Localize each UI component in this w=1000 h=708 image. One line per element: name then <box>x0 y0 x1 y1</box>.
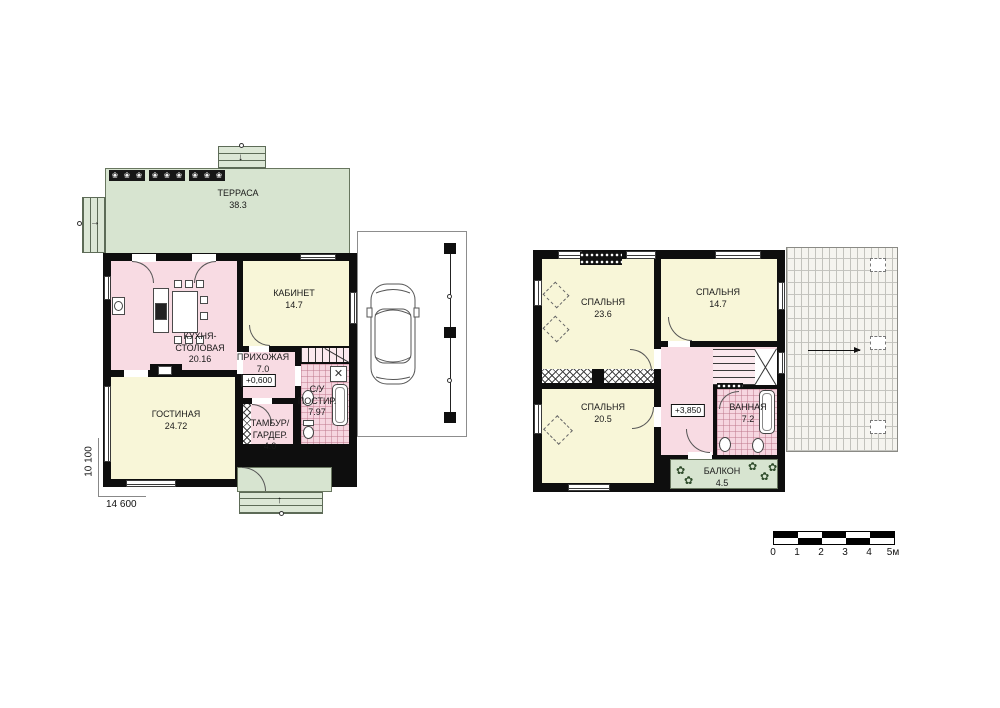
room-terrace <box>105 168 350 256</box>
room-area: 24.72 <box>152 421 201 433</box>
scale-tick-label: 2 <box>818 547 824 558</box>
washbasin <box>719 437 731 452</box>
room-area: 7.97 <box>298 407 336 419</box>
toilet <box>303 426 314 439</box>
room-name: СПАЛЬНЯ <box>581 402 625 414</box>
bathroom-label: ВАННАЯ 7.2 <box>729 402 766 425</box>
chair <box>185 280 193 288</box>
steps-start-circle <box>239 143 244 148</box>
window <box>626 251 656 259</box>
room-area: 14.7 <box>273 300 315 312</box>
fence-post <box>444 412 456 423</box>
window <box>778 282 785 310</box>
window <box>104 386 111 462</box>
room-name: ГАРДЕР. <box>251 430 290 442</box>
sink-bowl <box>114 301 123 311</box>
wardrobe-divider <box>592 369 604 383</box>
scale-cell <box>798 538 822 544</box>
room-name: ВАННАЯ <box>729 402 766 414</box>
room-name: СПАЛЬНЯ <box>696 287 740 299</box>
steps-start-circle <box>77 221 82 226</box>
window <box>104 276 111 300</box>
room-name: ГОСТИНАЯ <box>152 409 201 421</box>
plant-icon: ✿ <box>748 462 757 473</box>
plant-icon: ✿ <box>768 463 777 474</box>
kitchen-living-opening <box>124 370 148 377</box>
room-name: СТОЛОВАЯ <box>175 343 224 355</box>
chair <box>196 280 204 288</box>
bedroom-door-opening <box>654 349 661 369</box>
window <box>715 251 761 259</box>
scale-cell <box>870 538 894 544</box>
scale-tick-label: 4 <box>866 547 872 558</box>
chair <box>200 312 208 320</box>
chimney <box>580 252 622 265</box>
room-name: БАЛКОН <box>704 466 740 478</box>
living-label: ГОСТИНАЯ 24.72 <box>152 409 201 432</box>
scale-bar-row <box>774 538 894 544</box>
room-area: 20.16 <box>175 354 224 366</box>
floor-plan-canvas: ❀ ❀ ❀ ❀ ❀ ❀ ❀ ❀ ❀ ↓ → <box>0 0 1000 708</box>
chair <box>174 280 182 288</box>
window <box>126 480 176 487</box>
office-label: КАБИНЕТ 14.7 <box>273 288 315 311</box>
steps-arrow-up: ↑ <box>277 496 282 506</box>
room-name: ПРИХОЖАЯ <box>237 352 289 364</box>
flower-box-icon: ❀ <box>149 170 161 181</box>
stairs-first-floor <box>301 348 349 362</box>
room-area: 14.7 <box>696 299 740 311</box>
steps-arrow-right: → <box>90 218 100 228</box>
flower-box-icon: ❀ <box>201 170 213 181</box>
stove <box>155 303 167 320</box>
scale-tick-label: 3 <box>842 547 848 558</box>
wc-door-opening <box>295 366 301 386</box>
roof-column <box>870 420 886 434</box>
scale-bar <box>773 531 895 545</box>
balcony-label: БАЛКОН 4.5 <box>704 466 740 489</box>
washer-icon: ✕ <box>330 366 347 382</box>
roof-column <box>870 258 886 272</box>
room-name: СПАЛЬНЯ <box>581 297 625 309</box>
scale-cell <box>822 538 846 544</box>
chair <box>200 296 208 304</box>
bedroom-top-label: СПАЛЬНЯ 14.7 <box>696 287 740 310</box>
room-name: ТАМБУР/ <box>251 418 290 430</box>
level-mark: +0,600 <box>242 374 276 387</box>
window <box>534 404 542 434</box>
fence-knot <box>447 378 452 383</box>
kitchen-label: КУХНЯ- СТОЛОВАЯ 20.16 <box>175 331 224 366</box>
dimension-line <box>98 438 99 496</box>
room-area: 4.5 <box>704 478 740 490</box>
bedroom-large-label: СПАЛЬНЯ 23.6 <box>581 297 625 320</box>
bedroom-door-opening <box>654 407 661 427</box>
fence-post <box>444 243 456 254</box>
window <box>568 484 610 491</box>
level-mark: +3,850 <box>671 404 705 417</box>
stairs-second-floor <box>713 349 755 385</box>
room-area: 7.2 <box>729 414 766 426</box>
room-name: КУХНЯ- <box>175 331 224 343</box>
scale-tick-label: 1 <box>794 547 800 558</box>
window <box>778 352 785 374</box>
room-area: 23.6 <box>581 309 625 321</box>
scale-cell <box>846 538 870 544</box>
room-name: КАБИНЕТ <box>273 288 315 300</box>
room-area: 20.5 <box>581 414 625 426</box>
window <box>300 254 336 260</box>
fence-knot <box>447 294 452 299</box>
steps-arrow-down: ↓ <box>238 153 243 163</box>
hallway-label: ПРИХОЖАЯ 7.0 <box>237 352 289 375</box>
flower-box-icon: ❀ <box>109 170 121 181</box>
fireplace <box>158 366 172 375</box>
plant-icon: ✿ <box>684 476 693 487</box>
room-name: ТЕРРАСА <box>217 188 258 200</box>
wc-label: С/У ПОСТИР. 7.97 <box>298 384 336 419</box>
room-area: 4.0 <box>251 441 290 453</box>
scale-cell <box>774 538 798 544</box>
dimension-line <box>98 496 146 497</box>
tambour-label: ТАМБУР/ ГАРДЕР. 4.0 <box>251 418 290 453</box>
bedroom-bottom-label: СПАЛЬНЯ 20.5 <box>581 402 625 425</box>
flower-box-icon: ❀ <box>133 170 145 181</box>
fence-post <box>444 327 456 338</box>
roof-slope-arrow <box>808 350 860 351</box>
dimension-width: 14 600 <box>106 499 137 510</box>
flower-box-icon: ❀ <box>189 170 201 181</box>
tambour-door-opening <box>252 398 272 404</box>
bedroom-door-opening <box>668 341 690 347</box>
window <box>534 280 542 306</box>
window <box>558 251 582 259</box>
room-area: 38.3 <box>217 200 258 212</box>
dimension-height: 10 100 <box>84 432 95 492</box>
room-name: ПОСТИР. <box>298 396 336 408</box>
toilet <box>752 438 764 453</box>
flower-box-icon: ❀ <box>173 170 185 181</box>
balcony-door-opening <box>688 452 712 459</box>
terrace-label: ТЕРРАСА 38.3 <box>217 188 258 211</box>
flower-box-icon: ❀ <box>121 170 133 181</box>
roof-column <box>870 336 886 350</box>
scale-tick-label: 0 <box>770 547 776 558</box>
car-icon <box>366 281 420 387</box>
dining-table <box>172 291 198 333</box>
flower-box-icon: ❀ <box>161 170 173 181</box>
window <box>350 292 357 324</box>
flower-box-icon: ❀ <box>213 170 225 181</box>
room-name: С/У <box>298 384 336 396</box>
scale-tick-label: 5м <box>887 547 899 558</box>
steps-start-circle <box>279 511 284 516</box>
